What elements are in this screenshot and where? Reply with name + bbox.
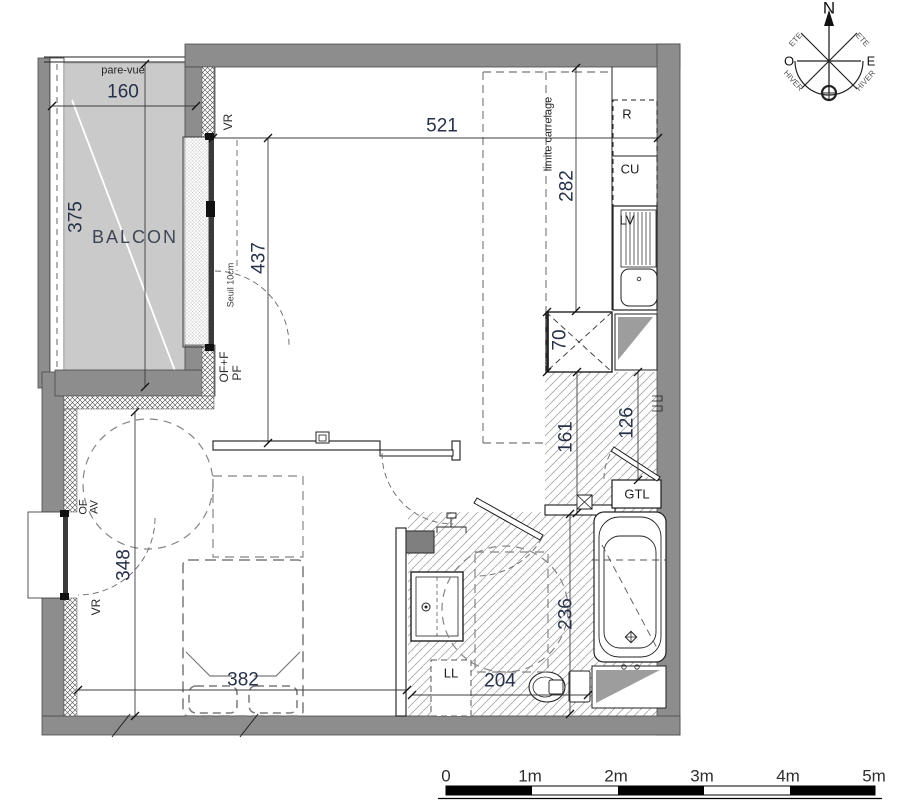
dim-living-width: 521 [426, 117, 458, 136]
av-label-bedroom: AV [90, 500, 101, 514]
cistern [569, 671, 590, 702]
bathtub [592, 512, 666, 669]
balcony-area [38, 57, 185, 388]
dim-hall-a: 161 [557, 421, 576, 453]
pare-vue-label: pare-vue [101, 66, 144, 77]
vr-label-living: VR [222, 114, 234, 131]
dim-balcony-width: 160 [107, 83, 139, 102]
cooktop-label: CU [621, 163, 640, 176]
scale-4m: 4m [776, 768, 800, 785]
pf-label: PF [231, 365, 243, 380]
turning-circle-bedroom [83, 419, 213, 549]
scale-0: 0 [441, 768, 450, 785]
dim-bath-width: 204 [484, 672, 516, 691]
fridge-label: R [622, 108, 631, 121]
door-handle [206, 201, 215, 217]
scale-3m: 3m [690, 768, 714, 785]
compass-north-label: N [823, 0, 835, 17]
gtl-label: GTL [624, 488, 649, 501]
fridge-box [613, 100, 657, 156]
vr-label-bedroom: VR [90, 599, 102, 616]
dim-bath-depth: 236 [557, 598, 576, 630]
dim-kitchen-depth: 282 [558, 170, 577, 202]
scale-2m: 2m [604, 768, 628, 785]
scale-1m: 1m [518, 768, 542, 785]
wardrobe [213, 476, 303, 557]
dim-living-depth: 437 [250, 242, 269, 274]
dim-column-width: 70 [551, 329, 570, 350]
bedroom-window [28, 512, 64, 598]
balcony-label: BALCON [92, 228, 178, 246]
toilet [529, 671, 590, 702]
washer-label: LL [444, 667, 458, 680]
dim-bedroom-depth: 348 [115, 549, 134, 581]
scale-bar [438, 786, 882, 799]
duct-box [406, 531, 434, 553]
bed [183, 560, 303, 716]
compass-east-label: E [867, 55, 876, 68]
dim-hall-b: 126 [618, 407, 637, 439]
pare-vue-screen [44, 57, 185, 62]
of-f-label: OF+F [218, 351, 230, 382]
compass-west-label: O [784, 55, 794, 68]
kitchen-units [612, 67, 657, 310]
limite-carrelage-label: limite carrelage [544, 97, 555, 172]
compass-rose [795, 10, 863, 100]
balcony-sliding-door [183, 137, 209, 347]
seuil-label: Seuil 10cm [227, 263, 236, 308]
bedroom-door-leaf [380, 450, 453, 456]
dim-balcony-depth: 375 [67, 201, 86, 233]
floor-plan-page: pare-vue 160 375 BALCON VR Seuil 10cm OF… [0, 0, 902, 800]
dim-bedroom-width: 382 [227, 671, 259, 690]
dishwasher-label: LV [620, 214, 635, 227]
kitchen-sink [621, 269, 657, 306]
scale-5m: 5m [862, 768, 886, 785]
